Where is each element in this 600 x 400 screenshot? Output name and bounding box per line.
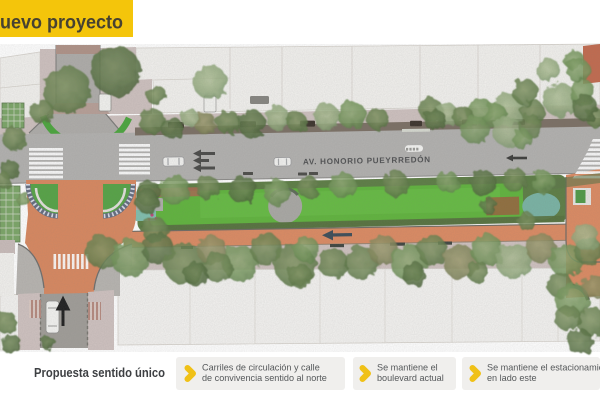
svg-text:de convivencia sentido al nort: de convivencia sentido al norte [202, 373, 327, 383]
svg-text:Se mantiene el: Se mantiene el [377, 363, 438, 373]
svg-text:Propuesta sentido único: Propuesta sentido único [34, 366, 165, 380]
svg-text:boulevard actual: boulevard actual [377, 373, 444, 383]
svg-text:Se mantiene el estacionamiento: Se mantiene el estacionamiento [487, 363, 600, 373]
svg-text:uevo proyecto: uevo proyecto [0, 13, 123, 34]
svg-text:Carriles de circulación y call: Carriles de circulación y calle [202, 363, 320, 373]
svg-text:en lado este: en lado este [487, 373, 537, 383]
